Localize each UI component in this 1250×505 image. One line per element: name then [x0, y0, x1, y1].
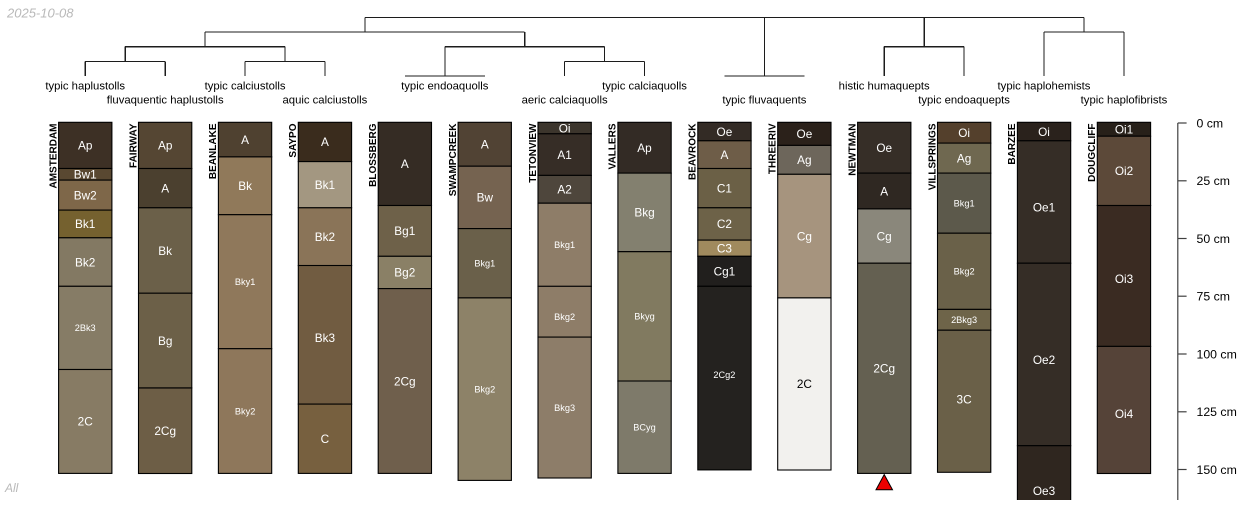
svg-text:Oi: Oi	[958, 126, 970, 140]
svg-text:Bw: Bw	[477, 191, 494, 205]
svg-text:100 cm: 100 cm	[1197, 347, 1237, 361]
svg-text:Oe1: Oe1	[1033, 201, 1055, 215]
svg-text:Bkg: Bkg	[634, 206, 654, 220]
svg-text:C1: C1	[717, 181, 732, 195]
svg-text:Cg1: Cg1	[714, 265, 736, 279]
svg-text:typic calciustolls: typic calciustolls	[205, 80, 286, 92]
svg-text:SWAMPCREEK: SWAMPCREEK	[448, 123, 459, 197]
svg-text:BEAVROCK: BEAVROCK	[688, 123, 699, 180]
svg-text:typic haplofibrists: typic haplofibrists	[1081, 94, 1168, 106]
svg-text:2Bk3: 2Bk3	[75, 323, 96, 333]
svg-text:histic humaquepts: histic humaquepts	[839, 80, 930, 92]
svg-text:aquic calciustolls: aquic calciustolls	[283, 94, 368, 106]
svg-text:2Bkg3: 2Bkg3	[951, 315, 977, 325]
svg-text:Bk1: Bk1	[315, 178, 335, 192]
svg-text:typic calciaquolls: typic calciaquolls	[602, 80, 687, 92]
svg-text:Bkg3: Bkg3	[554, 403, 575, 413]
svg-text:A: A	[880, 184, 888, 198]
svg-text:0 cm: 0 cm	[1197, 116, 1224, 130]
svg-text:Oi: Oi	[1038, 125, 1050, 139]
svg-text:Bg2: Bg2	[394, 266, 415, 280]
svg-text:typic endoaquolls: typic endoaquolls	[401, 80, 489, 92]
svg-text:BARZEE: BARZEE	[1007, 123, 1018, 164]
svg-text:Oi1: Oi1	[1115, 123, 1133, 137]
svg-text:Ap: Ap	[158, 139, 173, 153]
svg-text:Oe2: Oe2	[1033, 353, 1055, 367]
svg-text:SAYPO: SAYPO	[288, 123, 299, 157]
svg-text:Oi: Oi	[559, 121, 571, 135]
svg-text:2Cg2: 2Cg2	[713, 370, 735, 380]
svg-text:Oe3: Oe3	[1033, 484, 1056, 498]
svg-text:3C: 3C	[957, 393, 973, 407]
svg-text:TETONVIEW: TETONVIEW	[528, 123, 539, 183]
svg-text:A2: A2	[557, 183, 571, 197]
svg-text:Bkg1: Bkg1	[954, 199, 975, 209]
svg-text:Bk3: Bk3	[315, 331, 336, 345]
svg-text:typic haplohemists: typic haplohemists	[998, 80, 1091, 92]
svg-text:VALLERS: VALLERS	[608, 123, 619, 169]
svg-text:A: A	[161, 181, 169, 195]
svg-text:DOUGCLIFF: DOUGCLIFF	[1087, 124, 1098, 182]
svg-text:2Cg: 2Cg	[394, 374, 416, 388]
svg-text:Ag: Ag	[797, 153, 811, 167]
svg-text:Bw1: Bw1	[74, 168, 97, 182]
svg-text:FAIRWAY: FAIRWAY	[128, 123, 139, 168]
svg-text:Bg1: Bg1	[394, 224, 415, 238]
svg-text:Bk1: Bk1	[75, 217, 95, 231]
svg-text:Bkg2: Bkg2	[474, 384, 495, 394]
svg-text:A: A	[241, 133, 249, 147]
svg-text:typic endoaquepts: typic endoaquepts	[918, 94, 1010, 106]
svg-text:C: C	[321, 432, 330, 446]
svg-text:typic fluvaquents: typic fluvaquents	[722, 94, 806, 106]
svg-text:BEANLAKE: BEANLAKE	[208, 123, 219, 179]
svg-text:Bk2: Bk2	[315, 230, 335, 244]
svg-text:75 cm: 75 cm	[1197, 290, 1231, 304]
svg-text:typic haplustolls: typic haplustolls	[45, 80, 125, 92]
svg-text:A1: A1	[557, 148, 571, 162]
svg-text:Oe: Oe	[876, 141, 892, 155]
svg-text:THREERIV: THREERIV	[768, 123, 779, 174]
svg-text:Bky2: Bky2	[235, 406, 255, 416]
svg-text:Bkyg: Bkyg	[634, 312, 654, 322]
svg-text:Ag: Ag	[957, 151, 971, 165]
svg-text:Oi4: Oi4	[1115, 407, 1134, 421]
svg-text:BCyg: BCyg	[633, 423, 655, 433]
svg-text:C3: C3	[717, 241, 733, 255]
svg-text:A: A	[481, 138, 489, 152]
svg-text:2Cg: 2Cg	[873, 362, 895, 376]
svg-text:2C: 2C	[78, 415, 94, 429]
svg-text:Cg: Cg	[797, 229, 812, 243]
svg-text:25 cm: 25 cm	[1197, 174, 1231, 188]
svg-text:Oe: Oe	[797, 127, 813, 141]
svg-text:All: All	[4, 481, 19, 495]
svg-text:Bkg1: Bkg1	[474, 259, 495, 269]
svg-text:Oi2: Oi2	[1115, 164, 1133, 178]
svg-text:Ap: Ap	[78, 139, 93, 153]
svg-text:A: A	[321, 135, 329, 149]
svg-text:aeric calciaquolls: aeric calciaquolls	[522, 94, 608, 106]
svg-text:Bk: Bk	[238, 179, 252, 193]
svg-text:Ap: Ap	[637, 141, 652, 155]
svg-text:Bkg1: Bkg1	[554, 240, 575, 250]
svg-text:Cg: Cg	[877, 229, 892, 243]
svg-text:fluvaquentic haplustolls: fluvaquentic haplustolls	[107, 94, 224, 106]
svg-text:VILLSPRINGS: VILLSPRINGS	[927, 123, 938, 190]
svg-text:Bk: Bk	[158, 244, 172, 258]
svg-text:50 cm: 50 cm	[1197, 232, 1231, 246]
svg-text:Bk2: Bk2	[75, 255, 95, 269]
svg-text:2Cg: 2Cg	[154, 424, 176, 438]
svg-text:125 cm: 125 cm	[1197, 405, 1237, 419]
svg-text:2025-10-08: 2025-10-08	[6, 6, 74, 21]
svg-text:C2: C2	[717, 217, 732, 231]
svg-text:BLOSSBERG: BLOSSBERG	[368, 123, 379, 187]
svg-text:Bky1: Bky1	[235, 277, 255, 287]
svg-text:Oi3: Oi3	[1115, 272, 1134, 286]
svg-text:Oe: Oe	[717, 125, 733, 139]
svg-text:150 cm: 150 cm	[1197, 463, 1237, 477]
svg-text:Bg: Bg	[158, 334, 172, 348]
svg-text:A: A	[401, 157, 409, 171]
svg-text:Bw2: Bw2	[74, 188, 97, 202]
svg-text:A: A	[720, 148, 728, 162]
svg-text:Bkg2: Bkg2	[954, 267, 975, 277]
svg-text:2C: 2C	[797, 377, 813, 391]
svg-text:Bkg2: Bkg2	[554, 312, 575, 322]
svg-text:NEWTMAN: NEWTMAN	[847, 124, 858, 176]
svg-text:AMSTERDAM: AMSTERDAM	[48, 124, 59, 189]
